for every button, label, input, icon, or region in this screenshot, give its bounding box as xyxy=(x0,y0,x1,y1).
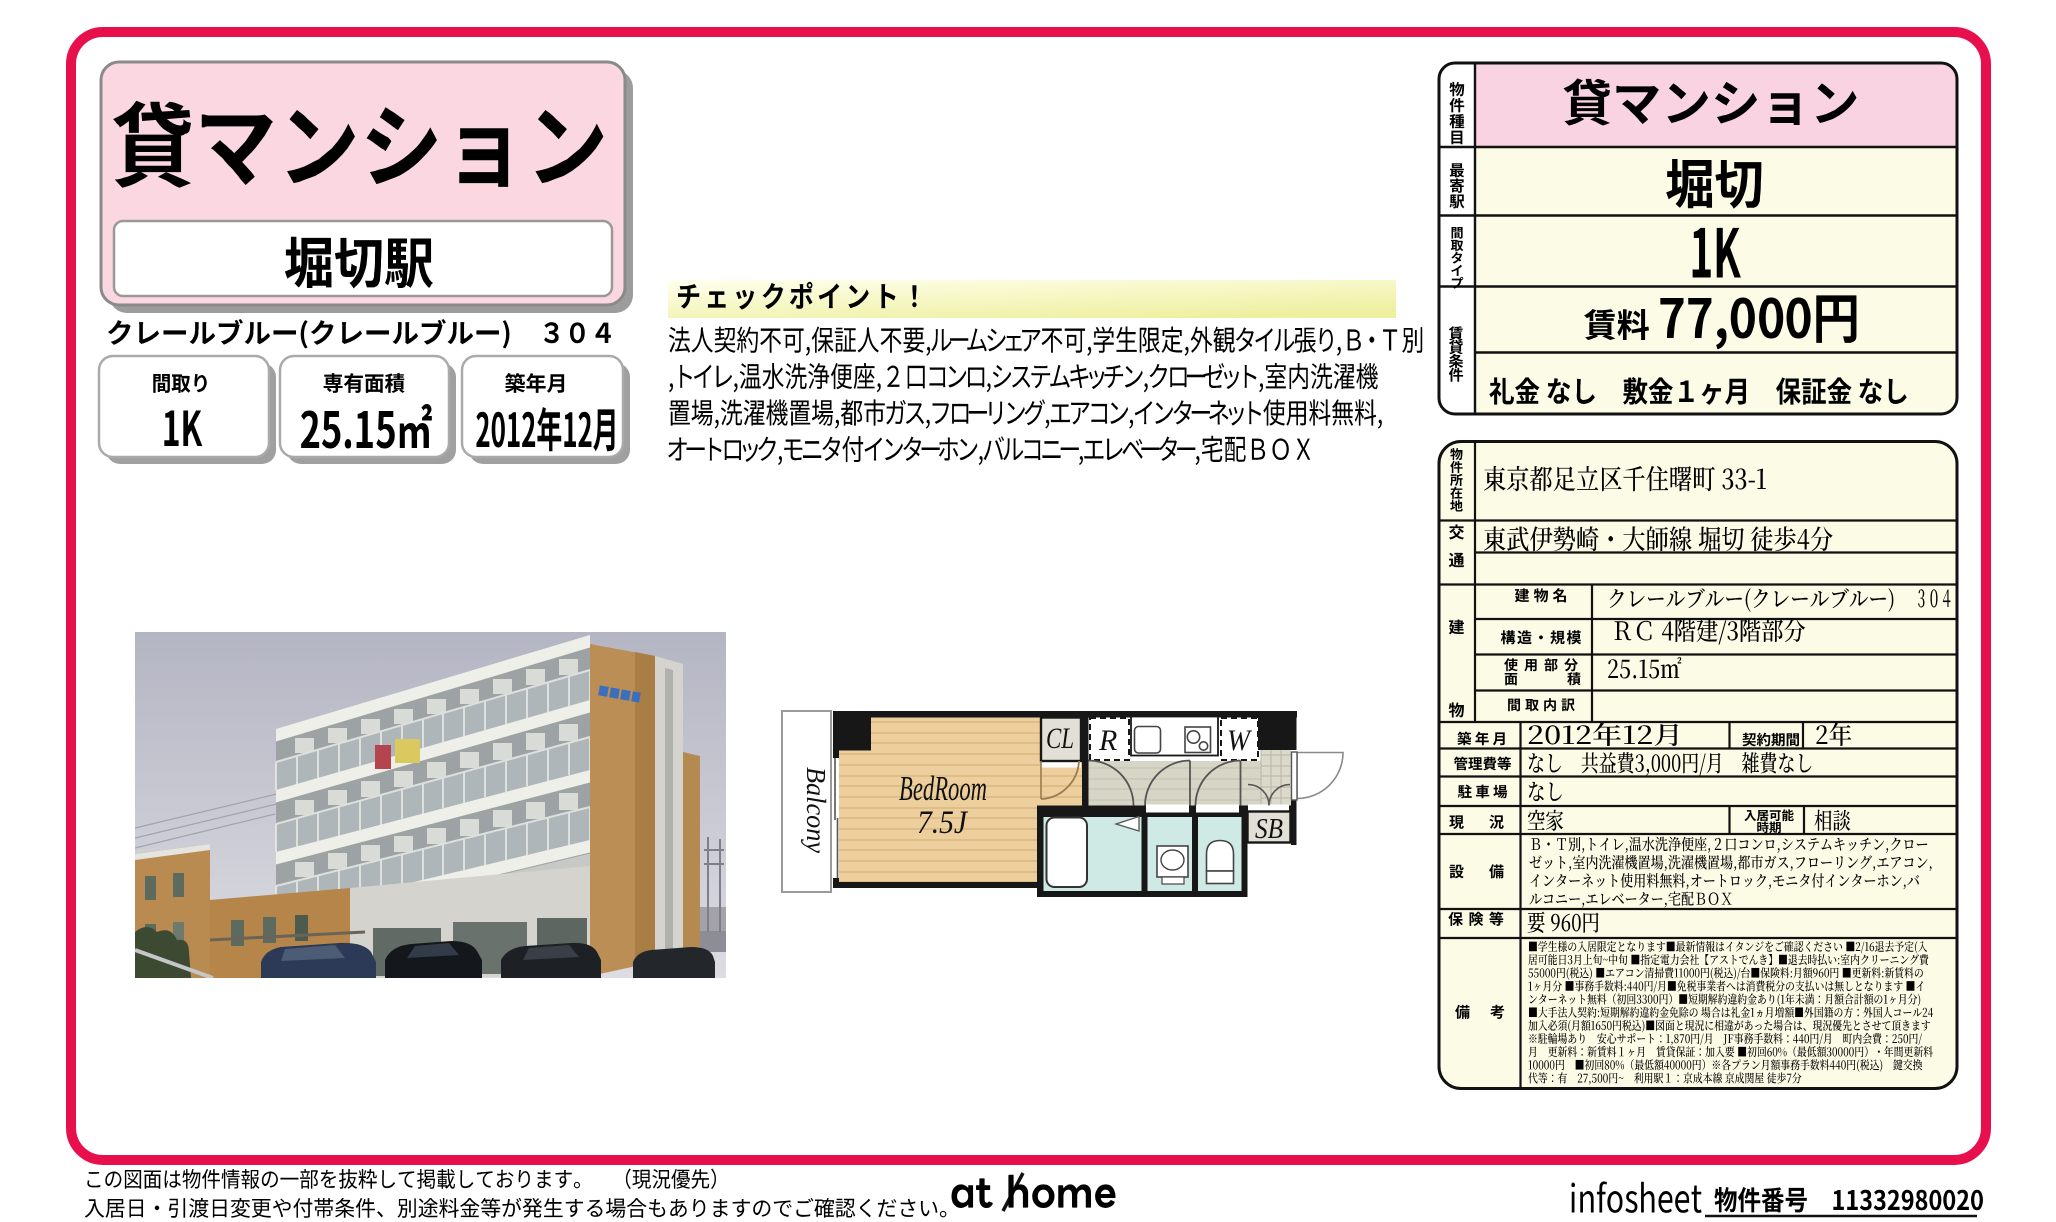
svg-text:W: W xyxy=(1227,724,1253,757)
svg-text:Balcony: Balcony xyxy=(801,767,831,853)
svg-text:R: R xyxy=(1098,724,1117,757)
svg-text:7.5J: 7.5J xyxy=(917,805,968,841)
svg-text:CL: CL xyxy=(1046,722,1074,755)
svg-text:BedRoom: BedRoom xyxy=(899,769,987,808)
svg-text:SB: SB xyxy=(1255,814,1283,845)
